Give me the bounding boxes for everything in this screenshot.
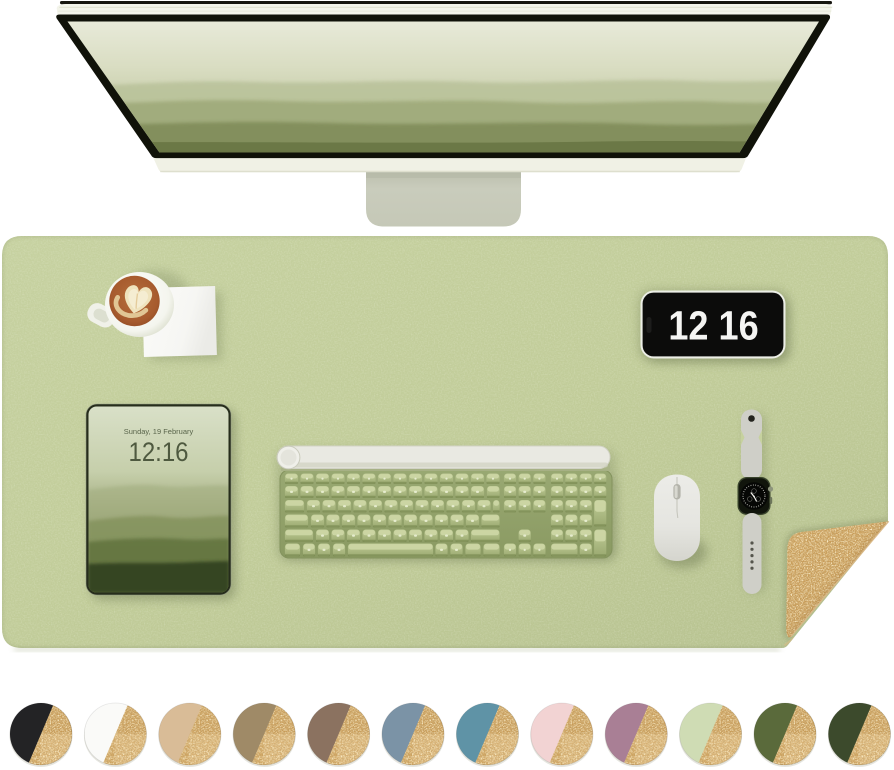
svg-text:12:16: 12:16 <box>129 437 189 467</box>
svg-text:Sunday, 19 February: Sunday, 19 February <box>124 427 194 436</box>
svg-text:12 16: 12 16 <box>668 303 758 349</box>
